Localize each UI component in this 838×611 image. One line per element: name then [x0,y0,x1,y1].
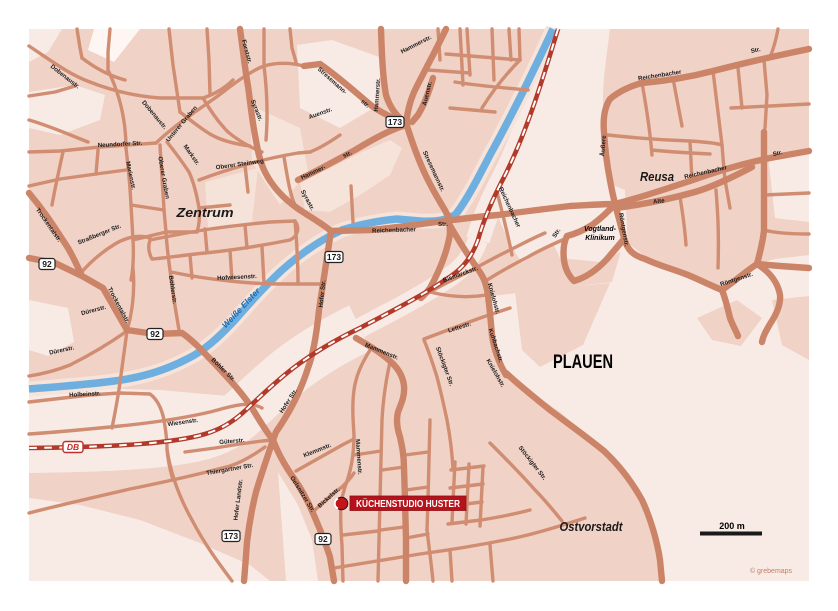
svg-text:Alte: Alte [653,197,666,205]
svg-text:KÜCHENSTUDIO HUSTER: KÜCHENSTUDIO HUSTER [356,497,461,510]
svg-text:173: 173 [327,252,341,262]
svg-text:Str.: Str. [438,221,448,228]
svg-text:173: 173 [388,117,402,127]
svg-text:Reusa: Reusa [640,169,674,184]
svg-text:200 m: 200 m [719,521,745,531]
svg-text:Zentrum: Zentrum [175,205,234,220]
svg-text:Klinikum: Klinikum [585,235,615,242]
svg-text:92: 92 [318,534,328,544]
svg-text:DB: DB [67,442,79,452]
svg-text:92: 92 [42,259,52,269]
svg-text:PLAUEN: PLAUEN [553,352,613,373]
svg-text:© grebemaps: © grebemaps [750,567,793,575]
svg-text:Vogtland-: Vogtland- [584,226,617,233]
svg-text:173: 173 [224,531,238,541]
svg-text:92: 92 [150,329,160,339]
svg-text:Ostvorstadt: Ostvorstadt [560,519,624,534]
